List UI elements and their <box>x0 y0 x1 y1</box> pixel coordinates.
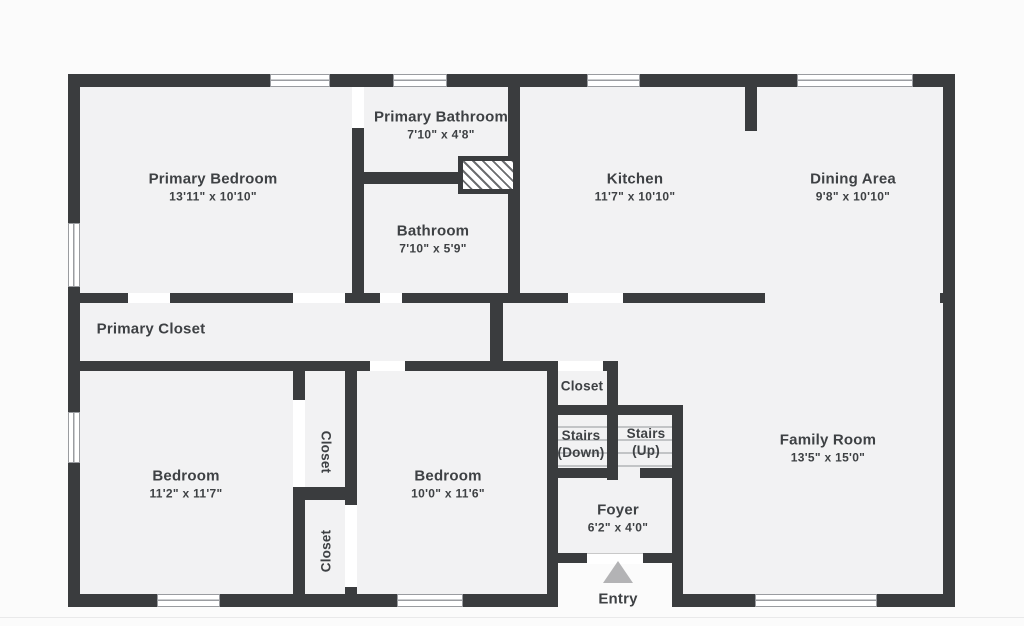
shower-hatch <box>458 156 518 194</box>
room-label-closet-hall: Closet <box>561 378 603 395</box>
window <box>68 412 80 463</box>
door-opening <box>293 293 345 303</box>
wall <box>603 361 618 371</box>
wall <box>643 553 683 563</box>
wall <box>293 487 357 500</box>
page-divider <box>0 617 1024 618</box>
entry-label: Entry <box>598 590 637 609</box>
wall <box>68 74 80 607</box>
wall <box>640 468 683 478</box>
wall <box>170 293 293 303</box>
wall <box>943 74 955 607</box>
door-opening <box>380 293 402 303</box>
wall <box>345 293 380 303</box>
wall <box>405 361 558 371</box>
room-label-primary-closet: Primary Closet <box>97 320 206 339</box>
wall <box>607 361 618 480</box>
door-opening <box>128 293 170 303</box>
room-label-closet-bedroom-left: Closet <box>318 431 335 473</box>
door-opening <box>345 505 357 587</box>
room-label-closet-bedroom-middle: Closet <box>318 530 335 572</box>
window <box>393 74 447 87</box>
room-label-kitchen: Kitchen 11'7" x 10'10" <box>595 170 676 205</box>
wall <box>547 553 587 563</box>
wall <box>364 172 460 184</box>
wall <box>402 293 568 303</box>
wall <box>68 361 370 371</box>
wall <box>547 468 613 478</box>
floor-plan: Primary Bedroom 13'11" x 10'10" Primary … <box>0 0 1024 626</box>
room-label-dining-area: Dining Area 9'8" x 10'10" <box>810 170 896 205</box>
window <box>797 74 913 87</box>
window <box>157 594 220 607</box>
room-label-primary-bedroom: Primary Bedroom 13'11" x 10'10" <box>149 170 278 205</box>
wall <box>490 303 503 363</box>
room-label-bathroom: Bathroom 7'10" x 5'9" <box>397 222 469 257</box>
room-label-stairs-down: Stairs (Down) <box>558 427 605 461</box>
window <box>587 74 640 87</box>
window <box>68 223 80 287</box>
door-opening <box>352 87 364 128</box>
window <box>755 594 877 607</box>
room-label-family-room: Family Room 13'5" x 15'0" <box>780 431 876 466</box>
room-label-foyer: Foyer 6'2" x 4'0" <box>588 501 648 536</box>
wall <box>508 87 520 303</box>
wall <box>68 293 128 303</box>
room-label-primary-bathroom: Primary Bathroom 7'10" x 4'8" <box>374 108 508 143</box>
room-label-bedroom-middle: Bedroom 10'0" x 11'6" <box>411 467 485 502</box>
room-label-stairs-up: Stairs (Up) <box>627 425 666 459</box>
wall <box>68 594 555 607</box>
wall <box>672 405 683 607</box>
wall <box>745 87 757 131</box>
window <box>270 74 330 87</box>
wall <box>547 361 558 607</box>
door-opening <box>293 400 305 487</box>
wall <box>940 293 955 303</box>
window <box>397 594 463 607</box>
wall <box>547 405 607 415</box>
door-opening <box>568 293 623 303</box>
entry-arrow-icon <box>603 561 633 583</box>
wall <box>623 293 765 303</box>
door-opening <box>558 361 603 371</box>
room-label-bedroom-left: Bedroom 11'2" x 11'7" <box>149 467 222 502</box>
door-opening <box>370 361 405 371</box>
wall <box>618 405 683 415</box>
